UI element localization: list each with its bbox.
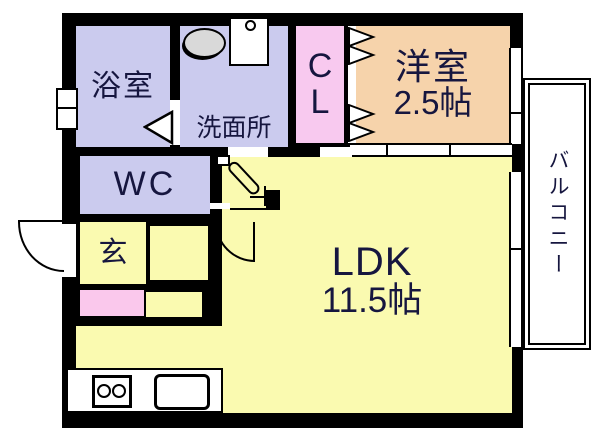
bath-window (56, 88, 78, 130)
washroom-label: 洗面所 (196, 115, 271, 141)
closet-folding-door-bottom (348, 104, 376, 142)
stove-burner-icon (97, 384, 111, 398)
wc-label: WC (114, 167, 177, 203)
entrance-hall-step (148, 224, 210, 282)
bath-label: 浴室 (91, 71, 155, 103)
two-burner-stove-icon (92, 375, 132, 408)
western-room-size: 2.5帖 (394, 86, 473, 121)
kitchen-counter (66, 368, 223, 413)
stove-burner-icon (112, 384, 126, 398)
wall-stub (266, 190, 280, 210)
ldk-label: LDK (332, 241, 413, 283)
sliding-partition-tick (449, 143, 451, 157)
room-western: 洋室 2.5帖 (356, 26, 510, 143)
hall-strip (146, 292, 202, 317)
floor-plan: バルコニー 浴室 洗面所 C L 洋室 2.5帖 WC 玄 LDK 11.5帖 (0, 0, 600, 435)
closet-label-l: L (311, 85, 330, 121)
sliding-partition (350, 143, 512, 157)
western-room-window-tick (509, 112, 523, 114)
bath-window-mullion (56, 107, 78, 109)
room-closet: C L (296, 26, 344, 143)
ldk-window (509, 172, 523, 347)
ldk-window-tick (509, 248, 523, 250)
sliding-partition-tick (386, 143, 388, 157)
wc-door-opening (210, 203, 230, 209)
entrance-label: 玄 (98, 238, 127, 268)
western-room-door-opening (320, 147, 352, 157)
room-wc: WC (80, 156, 210, 214)
kitchen-sink-icon (154, 374, 210, 410)
western-room-label: 洋室 (395, 48, 471, 86)
entrance-door-opening (62, 224, 76, 277)
washer-faucet-icon (245, 20, 256, 31)
balcony: バルコニー (523, 78, 591, 350)
ldk-label-group: LDK 11.5帖 (252, 232, 492, 328)
balcony-inner: バルコニー (528, 83, 586, 345)
shoe-cabinet (80, 290, 144, 316)
ldk-size: 11.5帖 (322, 283, 423, 320)
closet-label-c: C (308, 49, 333, 85)
room-entrance: 玄 (80, 222, 146, 284)
western-room-window (509, 48, 523, 144)
closet-folding-door-top (348, 27, 376, 65)
ldk-door-threshold (230, 208, 280, 210)
bath-door-triangle (143, 110, 174, 145)
balcony-label: バルコニー (546, 149, 568, 279)
washroom-door-opening (228, 147, 268, 157)
oval-basin-icon (183, 28, 226, 58)
entrance-door-arc (18, 222, 64, 272)
